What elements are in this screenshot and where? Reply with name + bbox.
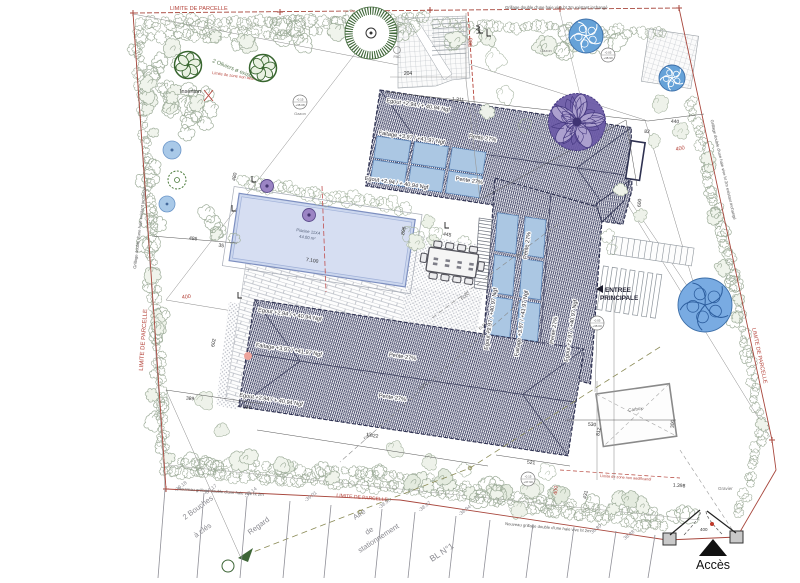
svg-text:ENTREE: ENTREE bbox=[605, 287, 632, 294]
svg-text:530: 530 bbox=[588, 422, 597, 429]
svg-text:1.398: 1.398 bbox=[673, 483, 686, 490]
svg-text:PRINCIPALE: PRINCIPALE bbox=[600, 295, 639, 302]
svg-text:-0.05: -0.05 bbox=[594, 319, 601, 323]
svg-text:400: 400 bbox=[553, 485, 560, 495]
svg-text:Gravier: Gravier bbox=[718, 486, 733, 491]
svg-text:Gazon: Gazon bbox=[540, 48, 552, 53]
svg-text:400: 400 bbox=[700, 527, 708, 532]
svg-text:-0.15: -0.15 bbox=[297, 98, 304, 102]
svg-text:204: 204 bbox=[404, 71, 413, 77]
svg-text:LIMITE DE PARCELLE: LIMITE DE PARCELLE bbox=[170, 6, 228, 12]
svg-text:+38.00: +38.00 bbox=[592, 324, 602, 328]
svg-text:+37.90: +37.90 bbox=[523, 480, 533, 484]
svg-text:-0.15: -0.15 bbox=[525, 475, 532, 479]
svg-text:PAC: PAC bbox=[394, 55, 401, 59]
svg-text:LAA: LAA bbox=[476, 24, 482, 34]
svg-text:Gazon: Gazon bbox=[294, 111, 306, 116]
svg-text:Grillage double d'une haie viv: Grillage double d'une haie vive ht 2m ex… bbox=[505, 5, 608, 10]
svg-text:-0.05: -0.05 bbox=[605, 51, 612, 55]
svg-text:Insertion: Insertion bbox=[180, 89, 201, 95]
svg-text:389: 389 bbox=[186, 396, 195, 403]
svg-text:800: 800 bbox=[468, 38, 474, 47]
svg-text:197: 197 bbox=[243, 405, 252, 412]
svg-text:440: 440 bbox=[671, 119, 680, 125]
svg-text:+38.90: +38.90 bbox=[603, 56, 613, 60]
svg-text:300: 300 bbox=[670, 419, 677, 428]
svg-text:82: 82 bbox=[644, 129, 650, 135]
svg-text:400: 400 bbox=[181, 294, 191, 301]
svg-text:600: 600 bbox=[637, 198, 644, 207]
svg-text:+38.08: +38.08 bbox=[295, 103, 305, 107]
svg-text:Accès: Accès bbox=[696, 558, 730, 572]
